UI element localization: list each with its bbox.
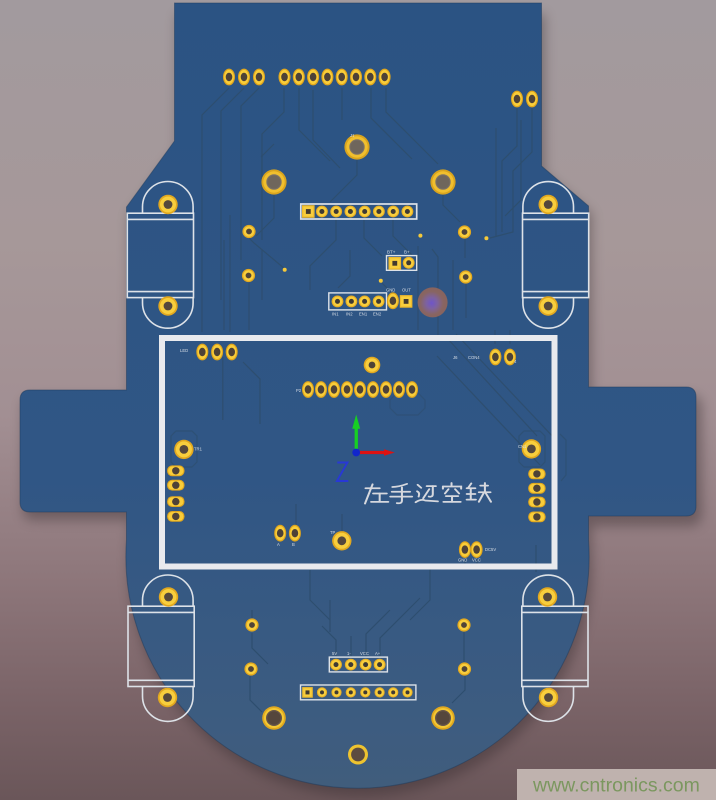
svg-text:EN2: EN2	[373, 312, 382, 317]
svg-text:BT+: BT+	[387, 250, 396, 255]
svg-text:GND: GND	[458, 558, 467, 563]
svg-text:EN1: EN1	[359, 312, 368, 317]
svg-text:A+: A+	[375, 651, 381, 656]
svg-text:B+: B+	[404, 250, 410, 255]
svg-text:www.cntronics.com: www.cntronics.com	[532, 775, 700, 797]
svg-text:CN1: CN1	[518, 444, 527, 449]
svg-text:VCC: VCC	[472, 558, 481, 563]
svg-text:TP: TP	[330, 530, 336, 535]
svg-text:J1: J1	[350, 133, 355, 138]
svg-text:OUT: OUT	[402, 288, 411, 293]
svg-text:IN1: IN1	[332, 312, 339, 317]
svg-text:IN2: IN2	[346, 312, 353, 317]
svg-text:5V: 5V	[332, 651, 337, 656]
svg-text:TR1: TR1	[194, 447, 203, 452]
svg-text:A: A	[277, 542, 280, 547]
svg-text:P2: P2	[296, 388, 302, 393]
svg-text:LED: LED	[180, 348, 188, 353]
svg-text:1-: 1-	[347, 651, 351, 656]
svg-text:CON4: CON4	[468, 355, 480, 360]
svg-text:GND: GND	[386, 288, 395, 293]
svg-text:B: B	[292, 542, 295, 547]
svg-text:VCC: VCC	[360, 651, 369, 656]
svg-text:DC5V: DC5V	[485, 547, 496, 552]
svg-text:J6: J6	[453, 355, 458, 360]
